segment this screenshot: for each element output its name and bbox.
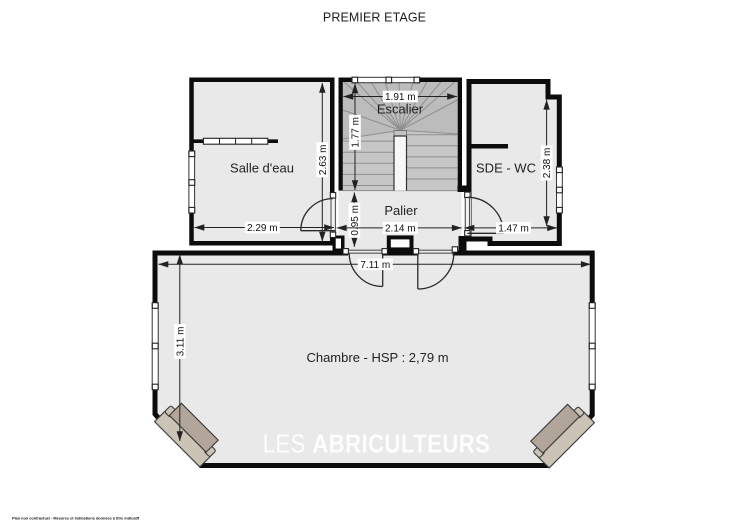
- svg-text:SDE - WC: SDE - WC: [476, 161, 536, 176]
- svg-text:Escalier: Escalier: [377, 102, 424, 117]
- svg-text:Chambre - HSP : 2,79 m: Chambre - HSP : 2,79 m: [306, 350, 448, 365]
- svg-text:Plan non contractuel - Mesures: Plan non contractuel - Mesures et indica…: [12, 517, 140, 521]
- svg-text:Palier: Palier: [384, 203, 418, 218]
- svg-text:2.63 m: 2.63 m: [318, 145, 329, 176]
- svg-text:PREMIER ETAGE: PREMIER ETAGE: [323, 11, 426, 25]
- svg-text:2.14 m: 2.14 m: [385, 223, 416, 234]
- svg-text:0.95 m: 0.95 m: [350, 205, 361, 236]
- svg-text:2.29 m: 2.29 m: [247, 223, 278, 234]
- svg-text:3.11 m: 3.11 m: [175, 327, 186, 357]
- svg-text:LES ABRICULTEURS: LES ABRICULTEURS: [263, 430, 490, 459]
- svg-text:Salle d'eau: Salle d'eau: [230, 161, 294, 176]
- svg-text:1.47 m: 1.47 m: [498, 223, 529, 234]
- svg-text:2.38 m: 2.38 m: [542, 148, 553, 179]
- svg-text:7.11 m: 7.11 m: [360, 260, 390, 271]
- svg-text:1.77 m: 1.77 m: [351, 117, 362, 148]
